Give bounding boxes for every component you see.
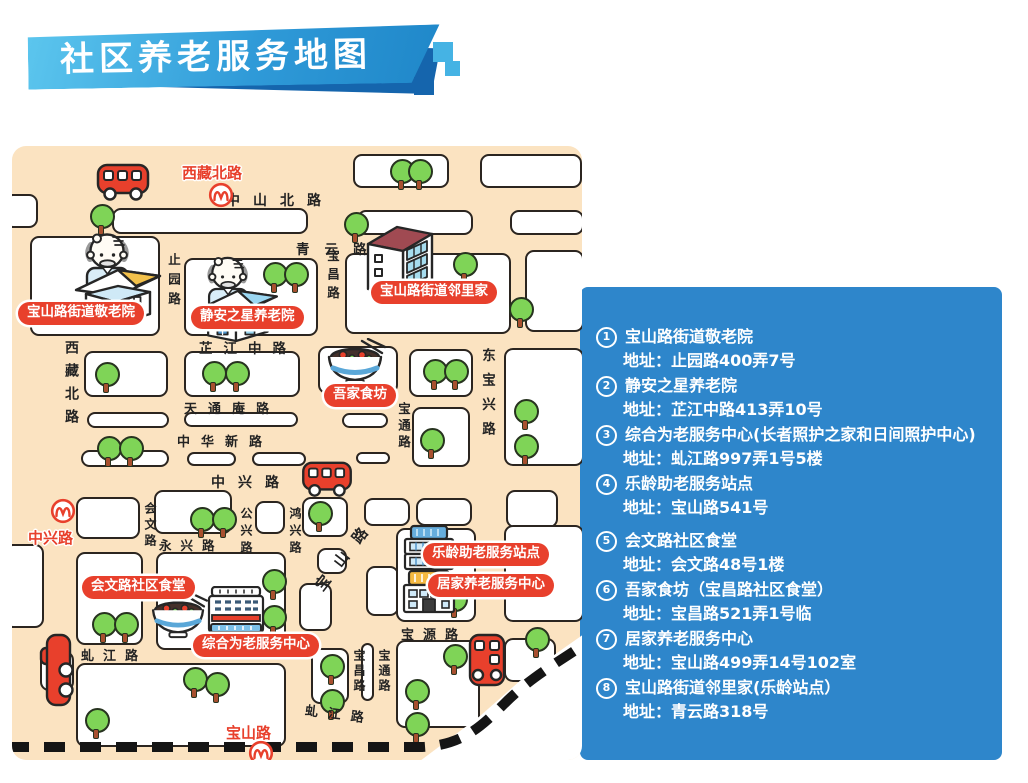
title-banner: 社区养老服务地图 xyxy=(0,0,520,110)
item-number-badge: 6 xyxy=(596,580,617,601)
poi-label-wujia-shifang: 吾家食坊 xyxy=(324,384,396,407)
poi-name: 宝山路街道敬老院 xyxy=(625,325,753,349)
poi-name: 吾家食坊（宝昌路社区食堂） xyxy=(625,578,833,602)
poi-label-jingan-star: 静安之星养老院 xyxy=(191,306,304,329)
banner-checker-square xyxy=(445,61,460,76)
noodle-bowl-icon xyxy=(148,592,210,640)
item-number-badge: 7 xyxy=(596,629,617,650)
poi-address: 地址：止园路400弄7号 xyxy=(596,349,992,373)
item-number-badge: 4 xyxy=(596,474,617,495)
banner-band: 社区养老服务地图 xyxy=(28,24,441,89)
poi-address: 地址：青云路318号 xyxy=(596,700,992,724)
elder-figure-nursing-home-icon xyxy=(184,248,288,343)
poi-name: 综合为老服务中心(长者照护之家和日间照护中心) xyxy=(625,423,976,447)
noodle-bowl-icon xyxy=(324,338,388,388)
info-panel: 1宝山路街道敬老院 地址：止园路400弄7号 2静安之星养老院 地址：芷江中路4… xyxy=(580,287,1002,760)
poi-address: 地址：虬江路997弄1号5楼 xyxy=(596,447,992,471)
poi-list-item: 8宝山路街道邻里家(乐龄站点） 地址：青云路318号 xyxy=(596,676,992,724)
canteen-building-icon xyxy=(206,586,266,636)
poi-list-item: 4乐龄助老服务站点 地址：宝山路541号 xyxy=(596,472,992,520)
item-number-badge: 1 xyxy=(596,327,617,348)
poi-name: 静安之星养老院 xyxy=(625,374,737,398)
poi-list-item: 7居家养老服务中心 地址：宝山路499弄14号102室 xyxy=(596,627,992,675)
poi-name: 宝山路街道邻里家(乐龄站点） xyxy=(625,676,840,700)
poi-label-zonghe-center: 综合为老服务中心 xyxy=(193,634,319,657)
item-number-badge: 3 xyxy=(596,425,617,446)
banner-checker-square xyxy=(414,77,434,95)
poi-list-item: 6吾家食坊（宝昌路社区食堂） 地址：宝昌路521弄1号临 xyxy=(596,578,992,626)
page-title: 社区养老服务地图 xyxy=(28,24,441,89)
item-number-badge: 8 xyxy=(596,678,617,699)
poi-label-linlijia: 宝山路街道邻里家 xyxy=(371,281,497,304)
poi-address: 地址：宝山路541号 xyxy=(596,496,992,520)
poi-list-item: 5会文路社区食堂 地址：会文路48号1楼 xyxy=(596,529,992,577)
poi-label-leling-station: 乐龄助老服务站点 xyxy=(423,543,549,566)
poi-address: 地址：宝山路499弄14号102室 xyxy=(596,651,992,675)
metro-logo-icon xyxy=(248,740,274,760)
banner-checker-square xyxy=(433,42,453,62)
poi-address: 地址：会文路48号1楼 xyxy=(596,553,992,577)
metro-logo-icon xyxy=(208,182,234,208)
metro-station-label-xizangbeilu: 西藏北路 xyxy=(182,162,242,183)
poi-name: 会文路社区食堂 xyxy=(625,529,737,553)
poster: 社区养老服务地图 xyxy=(0,0,1028,783)
poi-list-item: 2静安之星养老院 地址：芷江中路413弄10号 xyxy=(596,374,992,422)
map: 中山北路 青云路 芷江中路 天通庵路 中华新路 中兴路 永兴路 虬江路 宝源路 … xyxy=(12,146,582,760)
poi-label-huiwen-canteen: 会文路社区食堂 xyxy=(82,576,195,599)
poi-name: 乐龄助老服务站点 xyxy=(625,472,753,496)
item-number-badge: 5 xyxy=(596,531,617,552)
poi-name: 居家养老服务中心 xyxy=(625,627,753,651)
poi-label-jujia-center: 居家养老服务中心 xyxy=(428,574,554,597)
poi-address: 地址：芷江中路413弄10号 xyxy=(596,398,992,422)
poi-address: 地址：宝昌路521弄1号临 xyxy=(596,602,992,626)
item-number-badge: 2 xyxy=(596,376,617,397)
metro-logo-icon xyxy=(50,498,76,524)
poi-list-item: 1宝山路街道敬老院 地址：止园路400弄7号 xyxy=(596,325,992,373)
poi-list-item: 3综合为老服务中心(长者照护之家和日间照护中心) 地址：虬江路997弄1号5楼 xyxy=(596,423,992,471)
metro-station-label-zhongxinglu: 中兴路 xyxy=(28,527,73,548)
poi-label-jinglaoyuan: 宝山路街道敬老院 xyxy=(18,302,144,325)
